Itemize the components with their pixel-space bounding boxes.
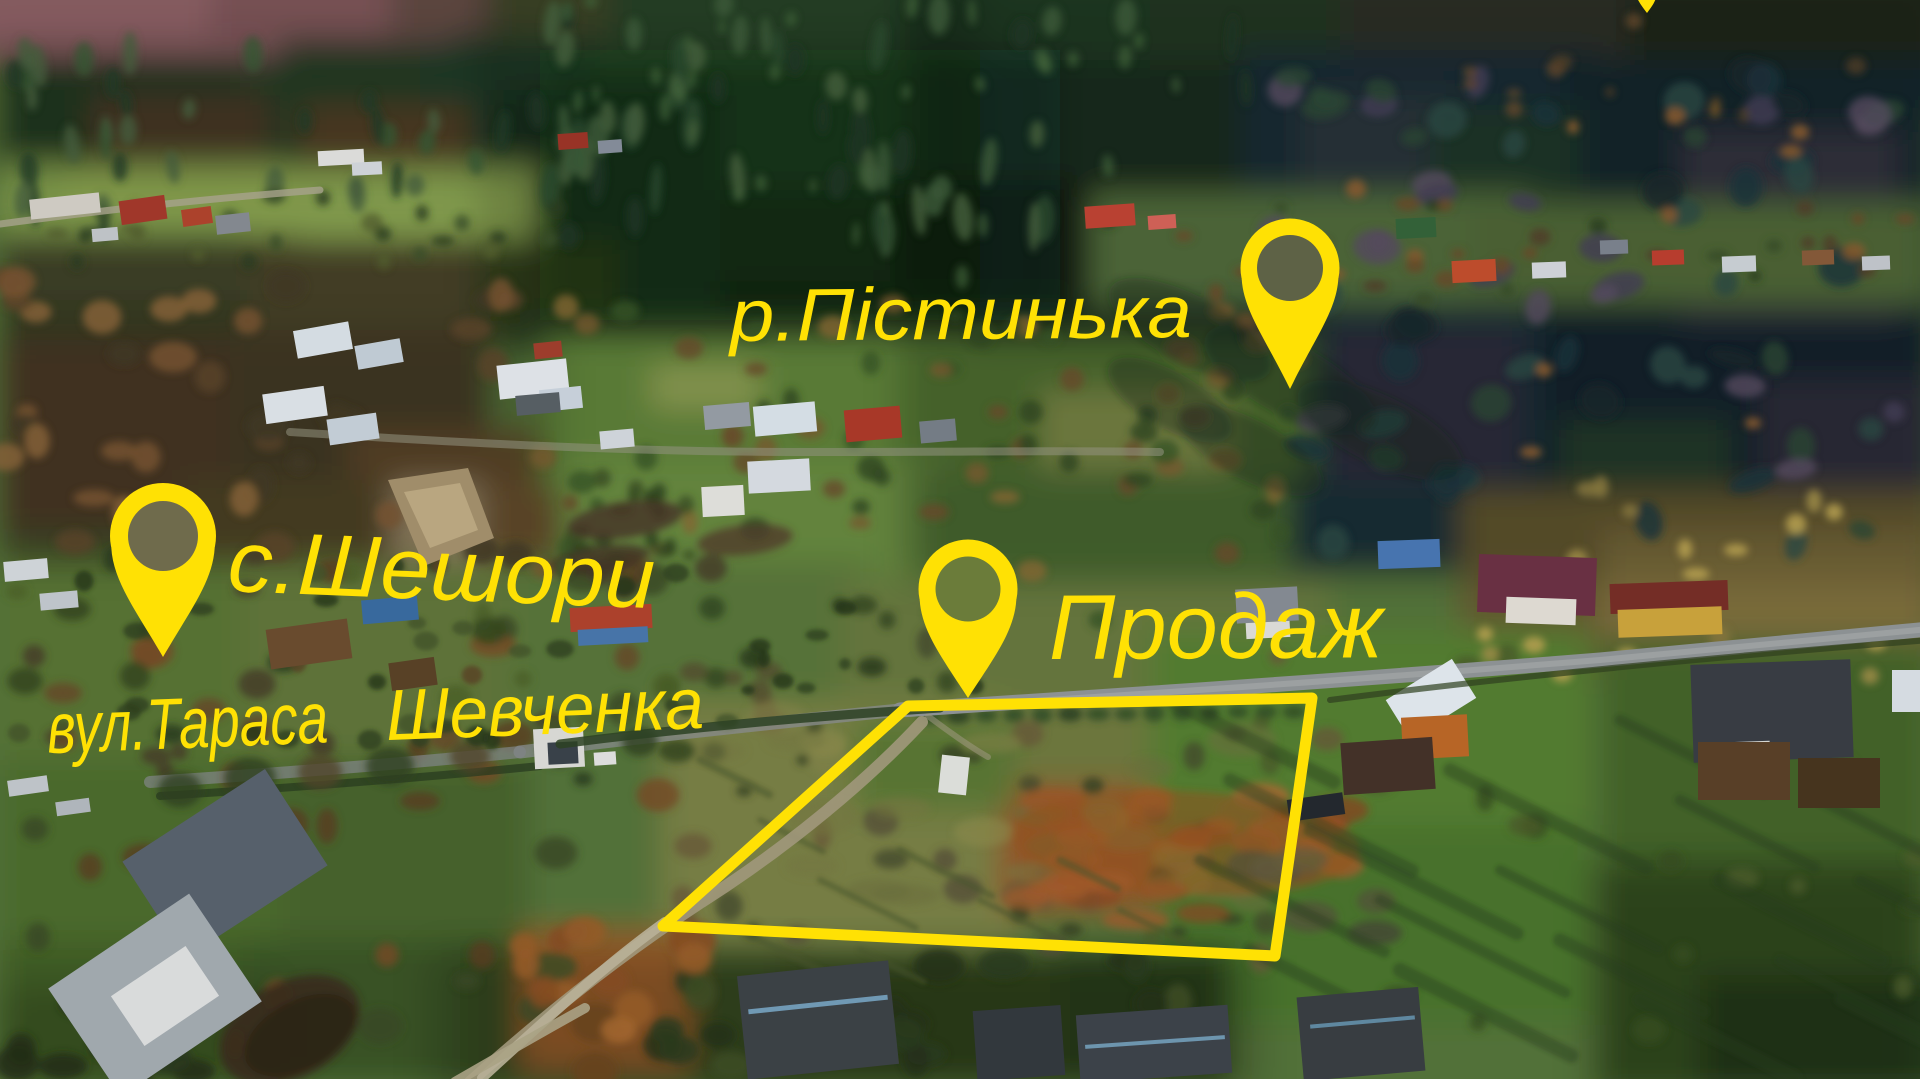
- svg-text:с.Шешори: с.Шешори: [226, 513, 657, 627]
- svg-text:Продаж: Продаж: [1049, 575, 1387, 679]
- svg-text:р.Пістинька: р.Пістинька: [727, 270, 1192, 357]
- svg-text:Шевченка: Шевченка: [384, 664, 705, 756]
- svg-text:вул.Тараса: вул.Тараса: [46, 678, 330, 769]
